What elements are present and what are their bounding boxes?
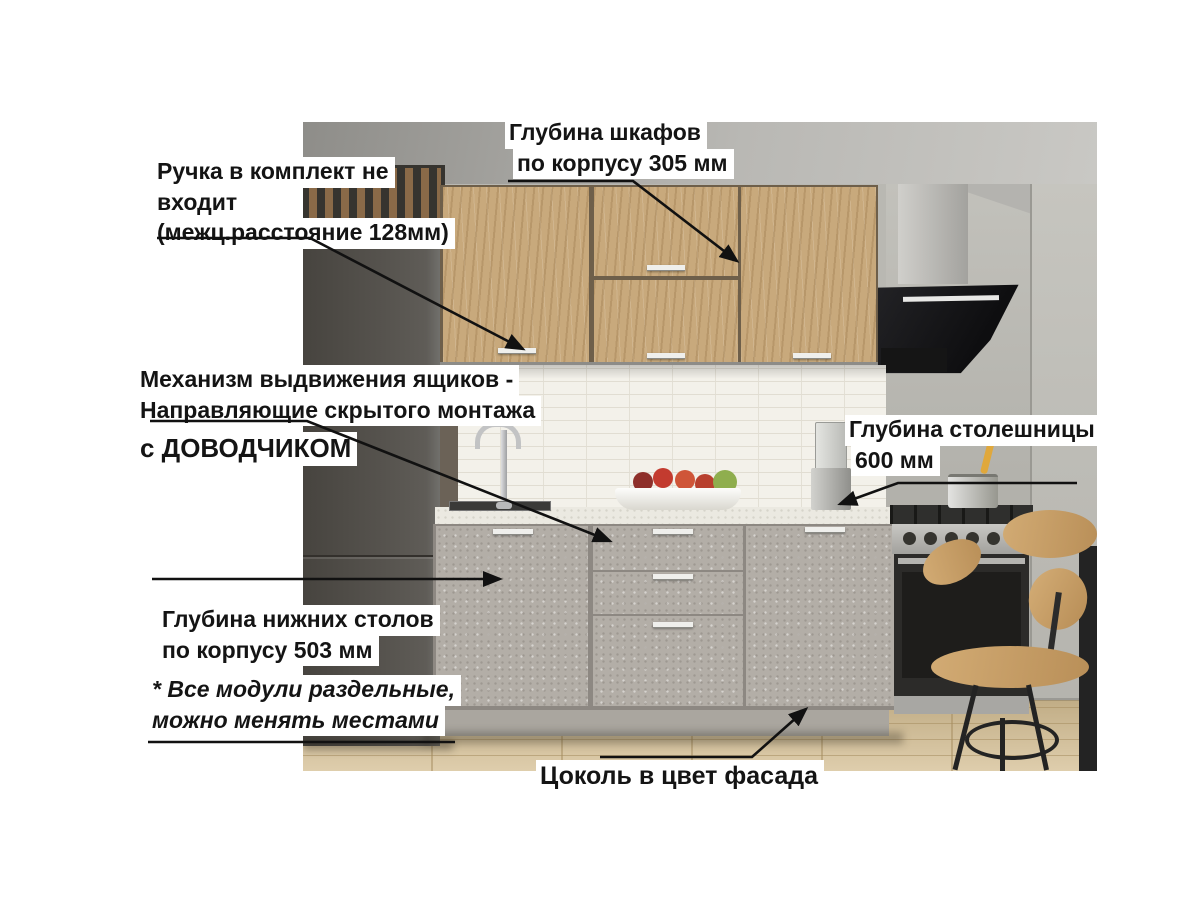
drawer-bottom xyxy=(593,616,743,706)
stool-footring xyxy=(965,720,1059,760)
stove-knob xyxy=(987,532,1000,545)
annotated-kitchen-figure: { "annotations": { "cabinet_depth": {"li… xyxy=(0,0,1200,900)
callout-line: Механизм выдвижения ящиков - xyxy=(136,365,519,396)
fridge-door-split xyxy=(303,555,440,557)
callout-line: Глубина столешницы xyxy=(845,415,1101,446)
callout-line: Глубина шкафов xyxy=(505,118,707,149)
callout-line: с ДОВОДЧИКОМ xyxy=(136,432,357,466)
base-left-handle xyxy=(493,529,533,535)
stove-bottom-drawer xyxy=(894,696,1029,714)
callout-line: входит xyxy=(153,188,243,219)
base-door-right xyxy=(746,526,896,706)
upper-right-handle xyxy=(793,353,831,359)
stool-seat-upper xyxy=(1003,510,1097,558)
callout-plinth: Цоколь в цвет фасада xyxy=(536,760,824,793)
upper-door-mid-bottom xyxy=(594,280,738,362)
callout-line: (межц.расстояние 128мм) xyxy=(153,218,455,249)
tall-cabinet-fridge xyxy=(303,230,440,746)
fruit-apple-1 xyxy=(653,468,673,488)
callout-handle-note: Ручка в комплект не входит (межц.расстоя… xyxy=(153,157,455,249)
callout-line: по корпусу 503 мм xyxy=(158,636,379,667)
fruit-bowl xyxy=(615,488,741,510)
callout-line: Ручка в комплект не xyxy=(153,157,395,188)
drawer-bottom-handle xyxy=(653,622,693,628)
callout-line: Глубина нижних столов xyxy=(158,605,440,636)
upper-door-left xyxy=(443,187,589,362)
drawer-top-handle xyxy=(653,529,693,535)
hood-chimney xyxy=(898,184,968,284)
callout-countertop-depth: Глубина столешницы 600 мм xyxy=(845,415,1101,476)
upper-door-right xyxy=(741,187,876,362)
faucet-base xyxy=(496,502,512,509)
upper-door-mid-top xyxy=(594,187,738,276)
callout-cabinet-depth: Глубина шкафов по корпусу 305 мм xyxy=(505,118,734,179)
callout-base-depth: Глубина нижних столов по корпусу 503 мм xyxy=(158,605,440,666)
stool-seat-lower xyxy=(931,646,1089,688)
pot xyxy=(948,474,998,508)
hood-filter-block xyxy=(881,348,947,372)
stove-knob xyxy=(903,532,916,545)
stove-knob xyxy=(924,532,937,545)
base-cabinet-floor-shadow xyxy=(423,732,903,744)
callout-line: Направляющие скрытого монтажа xyxy=(136,396,541,427)
drawer-middle-handle xyxy=(653,574,693,580)
callout-line: * Все модули раздельные, xyxy=(148,675,461,706)
blender-jar xyxy=(815,422,847,470)
callout-line: по корпусу 305 мм xyxy=(513,149,734,180)
fruit-apple-2 xyxy=(675,470,695,490)
callout-drawer-mechanism: Механизм выдвижения ящиков - Направляющи… xyxy=(136,365,541,466)
upper-midbottom-handle xyxy=(647,353,685,359)
base-right-handle xyxy=(805,527,845,533)
upper-left-handle xyxy=(498,348,536,354)
callout-modules-note: * Все модули раздельные, можно менять ме… xyxy=(148,675,461,736)
upper-midtop-handle xyxy=(647,265,685,271)
callout-line: можно менять местами xyxy=(148,706,445,737)
callout-line: 600 мм xyxy=(851,446,940,477)
callout-line: Цоколь в цвет фасада xyxy=(536,760,824,793)
